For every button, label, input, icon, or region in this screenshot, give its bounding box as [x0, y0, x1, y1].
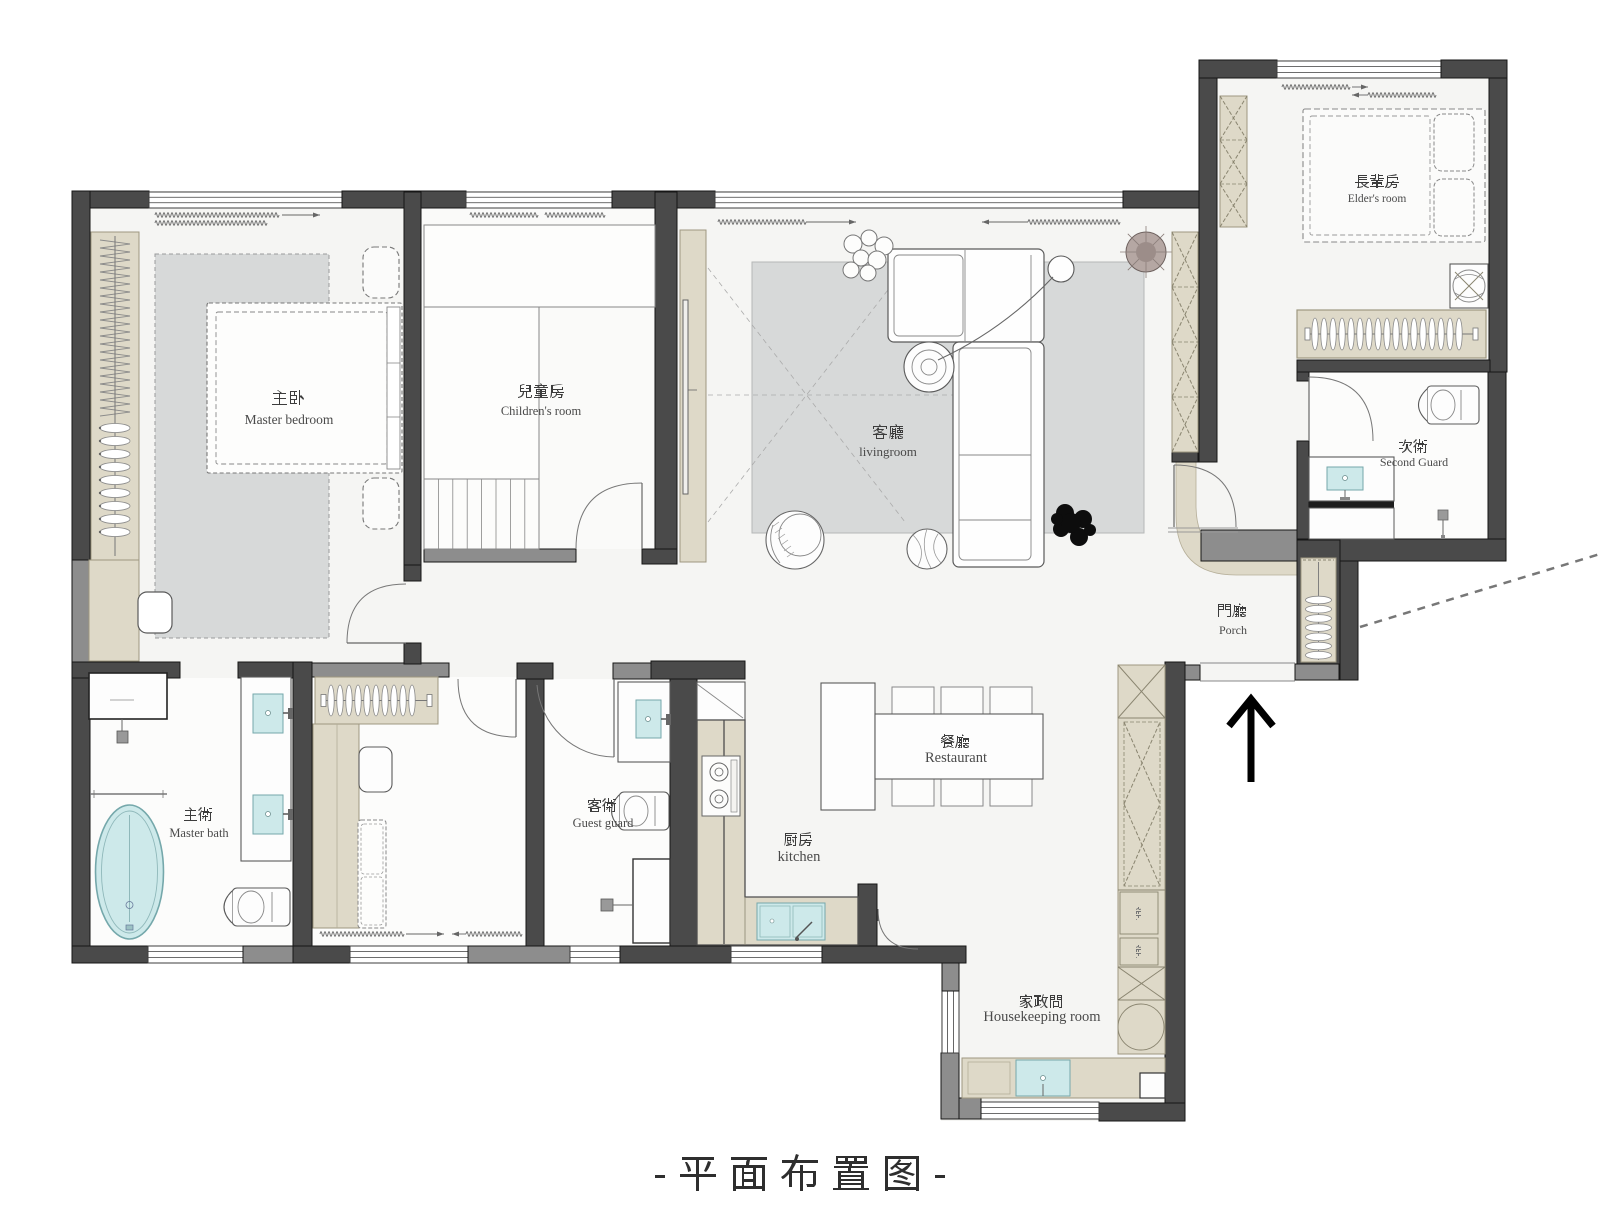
svg-text:Children's room: Children's room [501, 404, 582, 418]
svg-text:Master bedroom: Master bedroom [245, 412, 334, 427]
svg-text:kitchen: kitchen [778, 849, 821, 865]
svg-text:Master bath: Master bath [169, 826, 229, 840]
svg-text:Elder's room: Elder's room [1348, 193, 1407, 205]
svg-text:Guest guard: Guest guard [573, 816, 634, 830]
svg-text:livingroom: livingroom [859, 444, 917, 459]
svg-text:Housekeeping room: Housekeeping room [983, 1009, 1101, 1025]
svg-text:Restaurant: Restaurant [925, 750, 987, 766]
svg-text:Second Guard: Second Guard [1380, 455, 1448, 469]
svg-text:Porch: Porch [1219, 623, 1247, 637]
